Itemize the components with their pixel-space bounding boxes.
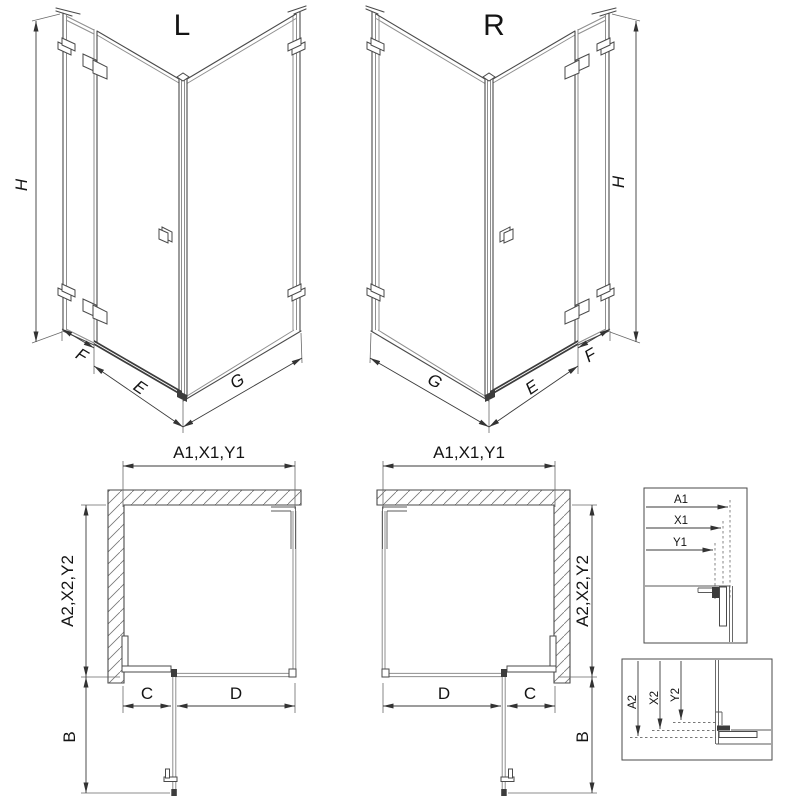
plan-right-door-projection: B [573,731,592,742]
detail-depth-label-y2: Y2 [670,688,682,702]
detail-box-width-dims: A1 X1 Y1 [644,488,747,643]
dim-label-height-right: H [609,175,628,188]
detail-depth-label-a2: A2 [627,695,639,709]
plan-view-left: A1,X1,Y1 A2,X2,Y2 C D B [58,443,301,796]
detail-width-label-y1: Y1 [673,537,687,549]
plan-view-right: A1,X1,Y1 A2,X2,Y2 D C B [377,443,597,796]
plan-left-fixed-segment: C [141,684,153,703]
iso-right-lineart [366,6,640,433]
plan-right-depth-dims: A2,X2,Y2 [573,555,592,627]
wall-section-right-plan [377,490,570,683]
wall-section-left-plan [108,490,301,683]
detail-box-width-frame [644,488,747,643]
dim-label-fixed-left: F [73,344,93,366]
plan-left-width-dims: A1,X1,Y1 [173,443,245,462]
plan-right-door-segment: D [438,684,450,703]
iso-left-lineart [32,6,306,433]
detail-width-label-a1: A1 [674,494,688,506]
plan-left-door-projection: B [60,731,79,742]
iso-view-right: R H F E G [366,6,640,433]
dim-label-door-left: E [130,376,151,398]
plan-left-depth-dims: A2,X2,Y2 [58,555,77,627]
detail-width-label-x1: X1 [674,515,688,527]
technical-drawing-sheet: L H F E G R H F E G A1,X1,Y1 A2,X2,Y2 C … [0,0,800,800]
plan-left-door-segment: D [230,684,242,703]
detail-box-depth-dims: A2 X2 Y2 [622,659,772,760]
dim-label-height-left: H [12,178,31,191]
variant-label-right: R [483,9,505,42]
detail-depth-label-x2: X2 [649,691,661,705]
dim-label-door-right: E [522,376,543,398]
dim-label-fixed-right: F [581,344,601,366]
variant-label-left: L [174,9,191,42]
iso-view-left: L H F E G [12,6,306,433]
plan-right-width-dims: A1,X1,Y1 [433,443,505,462]
plan-right-fixed-segment: C [524,684,536,703]
detail-box-depth-frame [622,659,772,760]
drawing-canvas: L H F E G R H F E G A1,X1,Y1 A2,X2,Y2 C … [0,0,800,800]
